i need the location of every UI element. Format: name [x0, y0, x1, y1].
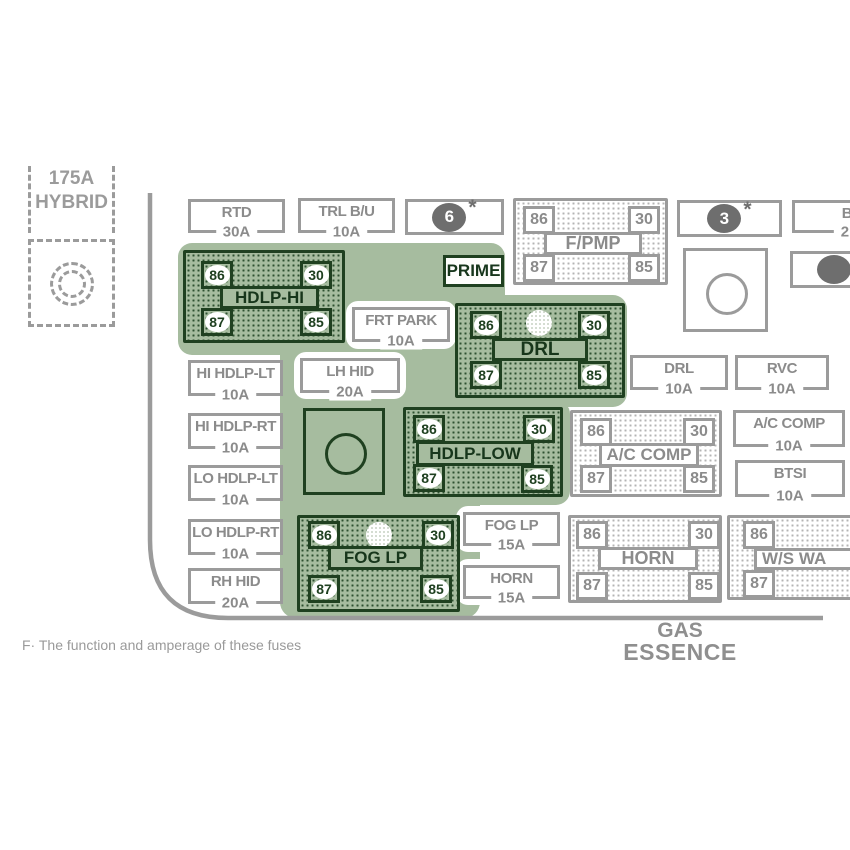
prime-label: PRIME	[443, 255, 504, 287]
terminal-number: 87	[583, 577, 601, 595]
socket-circle	[325, 433, 367, 475]
terminal-number: 85	[690, 470, 708, 488]
fuse-btsi-label: BTSI	[738, 466, 842, 482]
fuse-horn-amp: 15A	[491, 590, 533, 607]
marker-3-box: 3 *	[677, 200, 782, 237]
fuse-rtd-label: RTD	[191, 205, 282, 221]
relay-f-pmp-terminal-85: 85	[628, 254, 660, 282]
fuel-type-essence: ESSENCE	[610, 641, 750, 664]
relay-ac-comp: 86 30 A/C COMP 87 85	[570, 410, 722, 497]
fuse-block-diagram: 175A HYBRID RTD 30A TRL B/U 10A 6 * 3 * …	[0, 0, 850, 850]
relay-fog-lp-terminal-85: 85	[420, 575, 452, 603]
fuse-rtd-amp: 30A	[216, 224, 258, 241]
terminal-number: 87	[530, 259, 548, 277]
relay-drl-mount-hole	[526, 310, 552, 336]
fuse-rvc: RVC 10A	[735, 355, 829, 390]
terminal-number: 87	[417, 468, 442, 488]
relay-fog-lp-mount-hole	[366, 522, 392, 548]
fuse-drl: DRL 10A	[630, 355, 728, 390]
fuse-rtd: RTD 30A	[188, 199, 285, 233]
fuel-type-label: GAS ESSENCE	[610, 620, 750, 664]
terminal-number: 30	[304, 265, 329, 285]
fuse-ac-comp-amp: 10A	[768, 438, 810, 455]
marker-6-asterisk: *	[468, 196, 476, 220]
relay-drl-terminal-85: 85	[578, 361, 610, 389]
relay-horn-terminal-86: 86	[576, 521, 608, 549]
marker-partial-box	[790, 251, 850, 288]
relay-hdlp-low-terminal-30: 30	[523, 415, 555, 443]
fuse-hi-hdlp-rt-label: HI HDLP-RT	[191, 419, 280, 435]
fuse-horn: HORN 15A	[463, 565, 560, 599]
fuse-lh-hid-amp: 20A	[329, 384, 371, 401]
marker-partial-oval	[817, 255, 850, 284]
relay-f-pmp-label: F/PMP	[544, 232, 642, 255]
relay-hdlp-hi-terminal-30: 30	[300, 261, 332, 289]
terminal-number: 86	[750, 526, 768, 544]
relay-hdlp-hi-terminal-87: 87	[201, 308, 233, 336]
relay-socket-top-right	[683, 248, 768, 332]
relay-socket-center	[303, 408, 385, 495]
terminal-number: 30	[690, 423, 708, 441]
terminal-number: 85	[582, 365, 607, 385]
hybrid-socket-inner-circle	[58, 270, 86, 298]
terminal-number: 30	[426, 525, 451, 545]
terminal-number: 87	[587, 470, 605, 488]
terminal-number: 87	[474, 365, 499, 385]
fuse-hi-hdlp-lt: HI HDLP-LT 10A	[188, 360, 283, 396]
footnote-text: F· The function and amperage of these fu…	[22, 637, 301, 653]
fuse-horn-label: HORN	[466, 571, 557, 587]
relay-f-pmp-terminal-87: 87	[523, 254, 555, 282]
fuse-frt-park-amp: 10A	[380, 333, 422, 350]
fuse-frt-park-label: FRT PARK	[355, 313, 447, 329]
fuse-fog-lp-amp: 15A	[491, 537, 533, 554]
relay-drl-label: DRL	[492, 338, 588, 361]
relay-hdlp-low-label: HDLP-LOW	[416, 441, 534, 466]
fuse-frt-park: FRT PARK 10A	[352, 307, 450, 342]
terminal-number: 86	[474, 315, 499, 335]
relay-drl-terminal-86: 86	[470, 311, 502, 339]
fuse-btsi-amp: 10A	[769, 488, 811, 505]
relay-drl-terminal-30: 30	[578, 311, 610, 339]
terminal-number: 86	[530, 211, 548, 229]
relay-ac-comp-terminal-86: 86	[580, 418, 612, 446]
relay-hdlp-low: 86 30 HDLP-LOW 87 85	[403, 407, 563, 497]
fuse-drl-label: DRL	[633, 361, 725, 377]
relay-ac-comp-terminal-30: 30	[683, 418, 715, 446]
fuse-bu-partial: B/ 2	[792, 200, 850, 233]
terminal-number: 85	[635, 259, 653, 277]
marker-6-oval: 6	[432, 203, 466, 232]
socket-circle	[706, 273, 748, 315]
terminal-number: 86	[587, 423, 605, 441]
terminal-number: 87	[750, 575, 768, 593]
terminal-number: 86	[417, 419, 442, 439]
fuse-lo-hdlp-lt-label: LO HDLP-LT	[191, 471, 280, 487]
relay-f-pmp-terminal-86: 86	[523, 206, 555, 234]
relay-horn-terminal-85: 85	[688, 572, 720, 600]
fuse-fog-lp-label: FOG LP	[466, 518, 557, 534]
fuse-lo-hdlp-rt-label: LO HDLP-RT	[191, 525, 280, 541]
relay-hdlp-low-terminal-86: 86	[413, 415, 445, 443]
relay-horn: 86 30 HORN 87 85	[568, 515, 722, 603]
fuse-hi-hdlp-rt-amp: 10A	[215, 440, 257, 457]
terminal-number: 86	[312, 525, 337, 545]
fuse-rh-hid-amp: 20A	[215, 595, 257, 612]
fuse-hi-hdlp-lt-amp: 10A	[215, 387, 257, 404]
fuse-btsi: BTSI 10A	[735, 460, 845, 497]
relay-fog-lp-label: FOG LP	[328, 546, 423, 570]
fuse-ac-comp: A/C COMP 10A	[733, 410, 845, 447]
relay-drl: 86 30 DRL 87 85	[455, 303, 625, 398]
fuse-rh-hid: RH HID 20A	[188, 568, 283, 604]
fuse-trl-bu-amp: 10A	[326, 224, 368, 241]
relay-ws-wa: 86 W/S WA 87	[727, 515, 850, 600]
relay-hdlp-hi: 86 30 HDLP-HI 87 85	[183, 250, 345, 343]
terminal-number: 30	[635, 211, 653, 229]
relay-drl-terminal-87: 87	[470, 361, 502, 389]
marker-3-asterisk: *	[743, 198, 751, 222]
fuse-rvc-label: RVC	[738, 361, 826, 377]
relay-f-pmp-terminal-30: 30	[628, 206, 660, 234]
terminal-number: 85	[424, 579, 449, 599]
relay-horn-terminal-30: 30	[688, 521, 720, 549]
terminal-number: 85	[695, 577, 713, 595]
fuse-lo-hdlp-rt-amp: 10A	[215, 546, 257, 563]
fuse-hi-hdlp-rt: HI HDLP-RT 10A	[188, 413, 283, 449]
relay-fog-lp-terminal-87: 87	[308, 575, 340, 603]
fuse-bu-partial-amp: 2	[834, 224, 850, 241]
hybrid-name: HYBRID	[31, 191, 112, 215]
terminal-number: 87	[205, 312, 230, 332]
terminal-number: 30	[582, 315, 607, 335]
fuse-drl-amp: 10A	[658, 381, 700, 398]
fuse-rvc-amp: 10A	[761, 381, 803, 398]
relay-horn-terminal-87: 87	[576, 572, 608, 600]
fuse-fog-lp: FOG LP 15A	[463, 512, 560, 546]
relay-ws-wa-label: W/S WA	[754, 548, 850, 570]
relay-hdlp-low-terminal-85: 85	[521, 465, 553, 493]
relay-ac-comp-terminal-85: 85	[683, 465, 715, 493]
fuse-lo-hdlp-lt-amp: 10A	[215, 492, 257, 509]
relay-fog-lp-terminal-30: 30	[422, 521, 454, 549]
relay-fog-lp: 86 30 FOG LP 87 85	[297, 515, 460, 612]
relay-hdlp-hi-terminal-85: 85	[300, 308, 332, 336]
fuse-lo-hdlp-lt: LO HDLP-LT 10A	[188, 465, 283, 501]
fuse-lh-hid-label: LH HID	[303, 364, 397, 380]
fuse-ac-comp-label: A/C COMP	[736, 416, 842, 432]
fuse-bu-partial-label: B/	[795, 206, 850, 222]
relay-ws-wa-terminal-86: 86	[743, 521, 775, 549]
terminal-number: 30	[695, 526, 713, 544]
marker-3-oval: 3	[707, 204, 741, 233]
relay-hdlp-low-terminal-87: 87	[413, 464, 445, 492]
terminal-number: 86	[583, 526, 601, 544]
relay-hdlp-hi-label: HDLP-HI	[220, 286, 319, 309]
fuse-lh-hid: LH HID 20A	[300, 358, 400, 393]
relay-ac-comp-label: A/C COMP	[599, 443, 699, 467]
fuse-trl-bu: TRL B/U 10A	[298, 198, 395, 233]
relay-f-pmp: 86 30 F/PMP 87 85	[513, 198, 668, 285]
relay-hdlp-hi-terminal-86: 86	[201, 261, 233, 289]
hybrid-amp: 175A	[31, 167, 112, 191]
terminal-number: 86	[205, 265, 230, 285]
hybrid-megafuse-label-box: 175A HYBRID	[28, 166, 115, 233]
terminal-number: 85	[525, 469, 550, 489]
fuel-type-gas: GAS	[610, 620, 750, 641]
terminal-number: 30	[527, 419, 552, 439]
fuse-trl-bu-label: TRL B/U	[301, 204, 392, 220]
fuse-lo-hdlp-rt: LO HDLP-RT 10A	[188, 519, 283, 555]
terminal-number: 87	[312, 579, 337, 599]
relay-horn-label: HORN	[598, 547, 698, 570]
relay-ws-wa-terminal-87: 87	[743, 570, 775, 598]
marker-6-box: 6 *	[405, 199, 504, 235]
relay-ac-comp-terminal-87: 87	[580, 465, 612, 493]
relay-fog-lp-terminal-86: 86	[308, 521, 340, 549]
terminal-number: 85	[304, 312, 329, 332]
fuse-rh-hid-label: RH HID	[191, 574, 280, 590]
fuse-hi-hdlp-lt-label: HI HDLP-LT	[191, 366, 280, 382]
hybrid-megafuse-socket	[28, 239, 115, 327]
